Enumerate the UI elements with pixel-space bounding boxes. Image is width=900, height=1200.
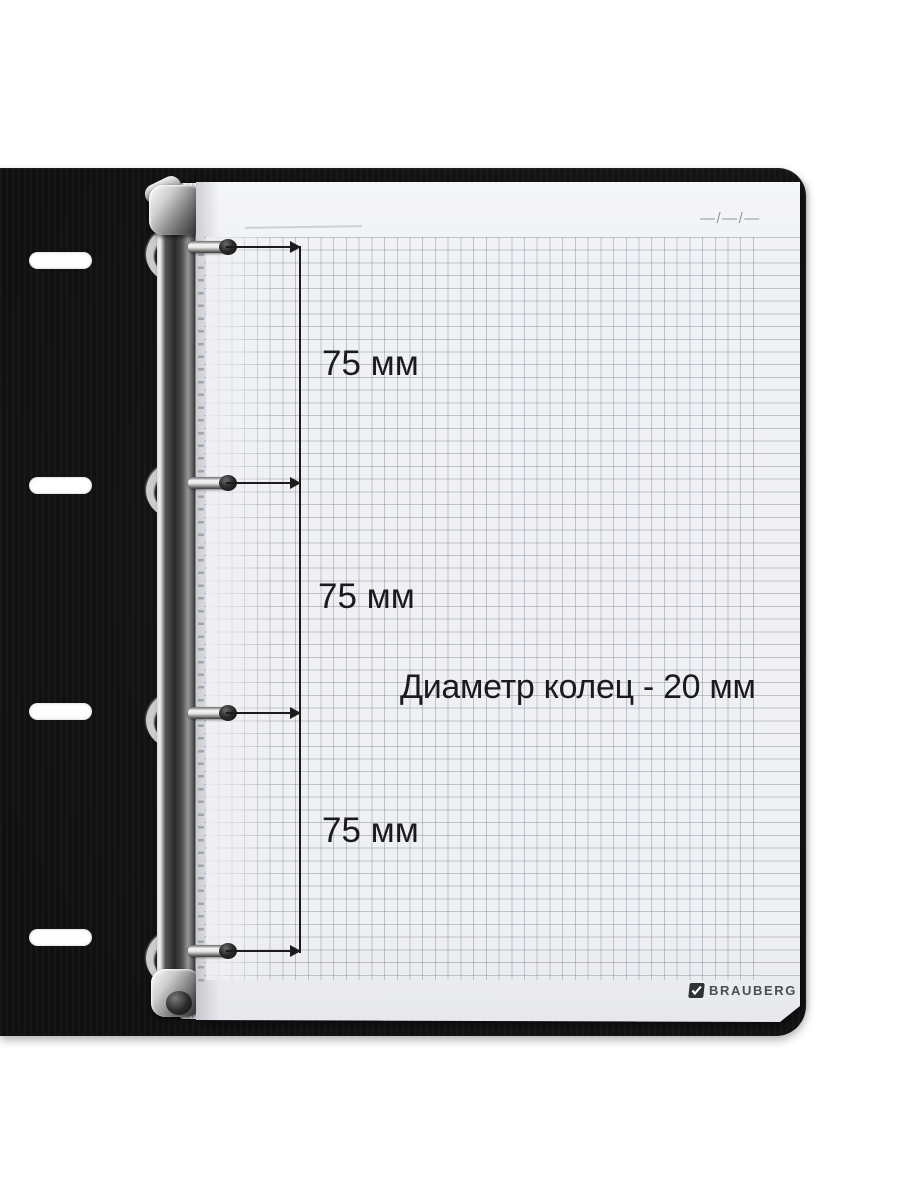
dimension-vertical-line	[299, 246, 301, 953]
dimension-leader-3	[226, 712, 292, 714]
checkmark-badge-icon	[688, 983, 705, 998]
brand-logo: BRAUBERG ®	[689, 982, 808, 999]
cover-slot-2	[29, 477, 92, 494]
arrow-right-icon	[290, 707, 301, 719]
dimension-leader-4	[226, 950, 292, 952]
grid-binding-fade	[206, 237, 276, 980]
arrow-right-icon	[290, 477, 301, 489]
ring-mechanism-bar	[157, 189, 195, 1015]
cover-slot-1	[29, 252, 92, 269]
cover-slot-4	[29, 929, 92, 946]
grid-vertical-lines	[206, 237, 762, 980]
brand-name: BRAUBERG	[709, 982, 797, 999]
dimension-leader-2	[226, 482, 292, 484]
under-sheet-edge-line	[245, 225, 362, 229]
arrow-right-icon	[290, 241, 301, 253]
spacing-label-3: 75 мм	[322, 812, 419, 851]
product-photo-binder-notebook: —/—/— BRAUBERG ® 75 мм 75 мм 75 мм Ди	[0, 0, 900, 1200]
ring-mechanism-bottom-knob	[166, 991, 192, 1015]
spacing-label-1: 75 мм	[322, 345, 419, 384]
squared-paper-page: —/—/— BRAUBERG ®	[196, 182, 800, 1022]
spacing-label-2: 75 мм	[318, 578, 415, 617]
ring-diameter-label: Диаметр колец - 20 мм	[400, 668, 756, 707]
cover-slot-3	[29, 703, 92, 720]
ring-mechanism-top-cap	[149, 185, 203, 235]
dimension-leader-1	[226, 246, 292, 248]
date-placeholder: —/—/—	[700, 210, 761, 227]
arrow-right-icon	[290, 945, 301, 957]
